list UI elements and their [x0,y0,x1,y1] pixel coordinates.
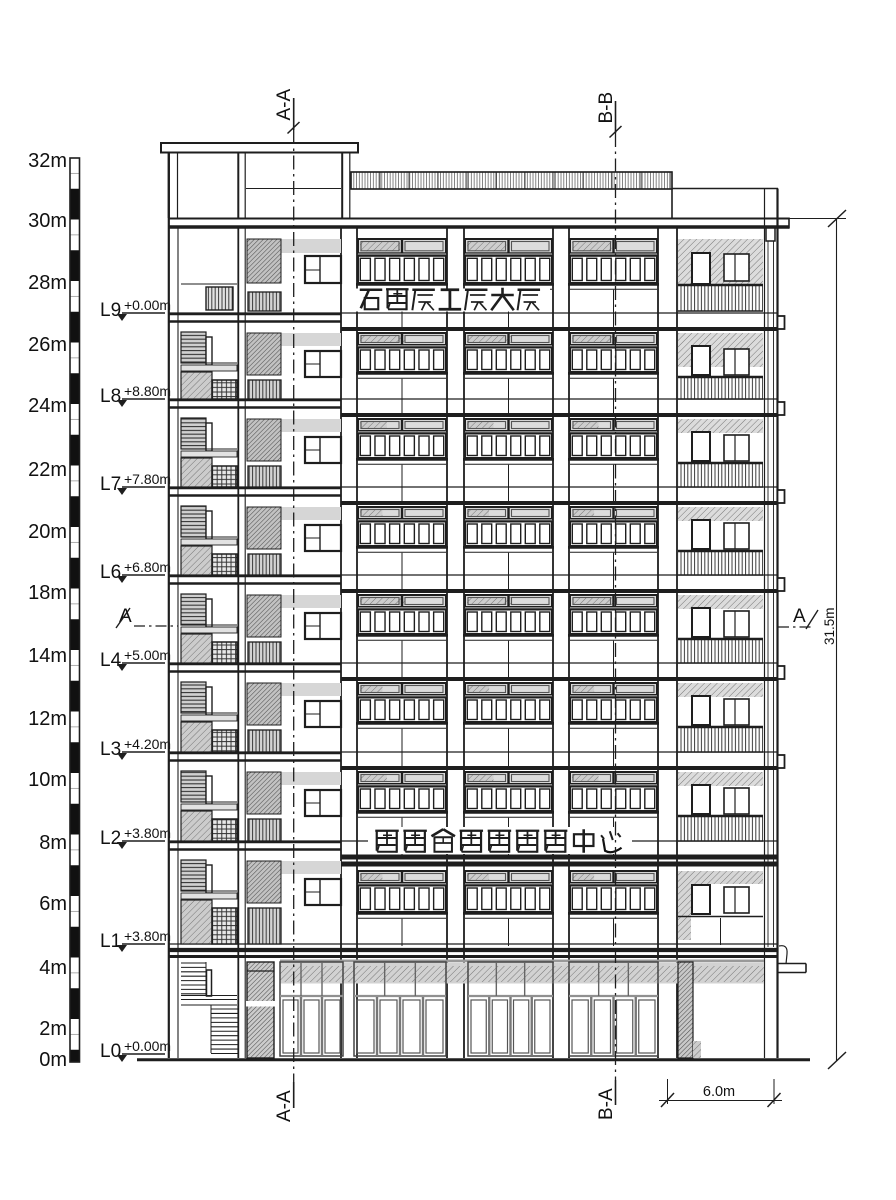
svg-text:24m: 24m [28,395,67,417]
svg-text:A: A [793,606,806,627]
svg-text:L7: L7 [100,474,121,495]
svg-text:28m: 28m [28,272,67,294]
svg-text:22m: 22m [28,459,67,481]
svg-text:4m: 4m [39,957,67,979]
svg-text:+5.00m: +5.00m [124,647,171,663]
svg-text:+7.80m: +7.80m [124,471,171,487]
svg-text:26m: 26m [28,334,67,356]
svg-text:8m: 8m [39,832,67,854]
svg-text:+3.80m: +3.80m [124,825,171,841]
svg-text:B-B: B-B [596,92,617,124]
svg-text:+4.20m: +4.20m [124,736,171,752]
svg-text:+8.80m: +8.80m [124,383,171,399]
svg-text:L6: L6 [100,562,121,583]
svg-text:20m: 20m [28,521,67,543]
svg-text:L9: L9 [100,300,121,321]
svg-text:31.5m: 31.5m [822,607,837,645]
svg-text:+0.00m: +0.00m [124,297,171,313]
svg-text:A: A [119,606,132,627]
svg-text:L1: L1 [100,931,121,952]
svg-text:+3.80m: +3.80m [124,928,171,944]
svg-text:12m: 12m [28,708,67,730]
svg-text:L4: L4 [100,650,122,671]
svg-text:L3: L3 [100,739,121,760]
svg-text:+0.00m: +0.00m [124,1038,171,1054]
svg-text:18m: 18m [28,582,67,604]
svg-text:B-A: B-A [596,1088,617,1120]
svg-text:14m: 14m [28,645,67,667]
svg-text:L0: L0 [100,1041,121,1062]
svg-text:30m: 30m [28,210,67,232]
svg-text:6.0m: 6.0m [703,1084,735,1100]
svg-text:32m: 32m [28,150,67,172]
svg-text:A-A: A-A [274,89,295,121]
svg-text:A-A: A-A [274,1090,295,1122]
svg-text:L8: L8 [100,386,121,407]
svg-text:+6.80m: +6.80m [124,559,171,575]
svg-text:L2: L2 [100,828,121,849]
svg-text:0m: 0m [39,1049,67,1071]
svg-text:10m: 10m [28,769,67,791]
svg-text:6m: 6m [39,893,67,915]
svg-text:2m: 2m [39,1018,67,1040]
